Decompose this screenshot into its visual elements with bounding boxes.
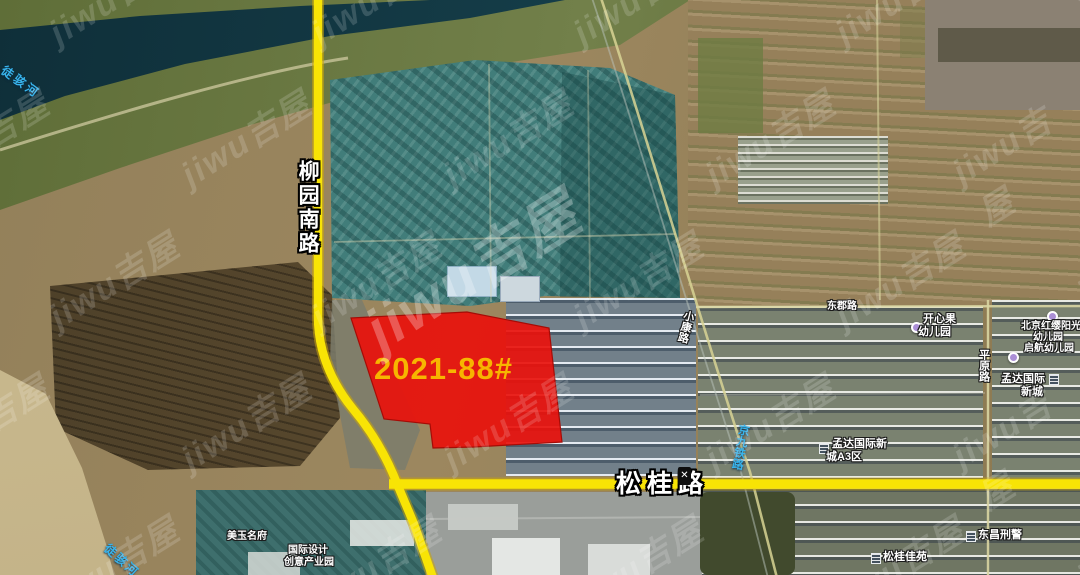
watermark: jiwu吉屋 — [0, 361, 58, 480]
watermark: jiwu吉屋 — [300, 503, 450, 575]
watermark: jiwu吉屋 — [941, 371, 1080, 519]
watermark: jiwu吉屋 — [432, 361, 582, 480]
watermark-large: jiwu吉屋 — [346, 168, 595, 367]
watermark: jiwu吉屋 — [562, 503, 712, 575]
watermark: jiwu吉屋 — [38, 503, 188, 575]
watermark: jiwu吉屋 — [824, 0, 974, 54]
watermark: jiwu吉屋 — [824, 219, 974, 338]
satellite-map: 柳园南路 松桂路 2021-88# 东郡路 小康路 平原路 京九铁路 徒骇河 徒… — [0, 0, 1080, 575]
watermark: jiwu吉屋 — [300, 219, 450, 338]
watermark-layer: jiwu吉屋jiwu吉屋jiwu吉屋jiwu吉屋jiwu吉屋jiwu吉屋jiwu… — [0, 0, 1080, 575]
watermark: jiwu吉屋 — [170, 77, 320, 196]
watermark: jiwu吉屋 — [694, 361, 844, 480]
watermark: jiwu吉屋 — [824, 503, 974, 575]
watermark: jiwu吉屋 — [432, 77, 582, 196]
watermark: jiwu吉屋 — [562, 219, 712, 338]
watermark: jiwu吉屋 — [38, 0, 188, 54]
watermark: jiwu吉屋 — [1070, 0, 1080, 71]
watermark: jiwu吉屋 — [694, 77, 844, 196]
watermark: jiwu吉屋 — [1070, 525, 1080, 575]
watermark: jiwu吉屋 — [0, 77, 58, 196]
watermark: jiwu吉屋 — [300, 0, 450, 54]
watermark: jiwu吉屋 — [562, 0, 712, 54]
watermark: jiwu吉屋 — [170, 361, 320, 480]
watermark: jiwu吉屋 — [38, 219, 188, 338]
watermark: jiwu吉屋 — [1070, 241, 1080, 355]
watermark: jiwu吉屋 — [941, 87, 1080, 235]
